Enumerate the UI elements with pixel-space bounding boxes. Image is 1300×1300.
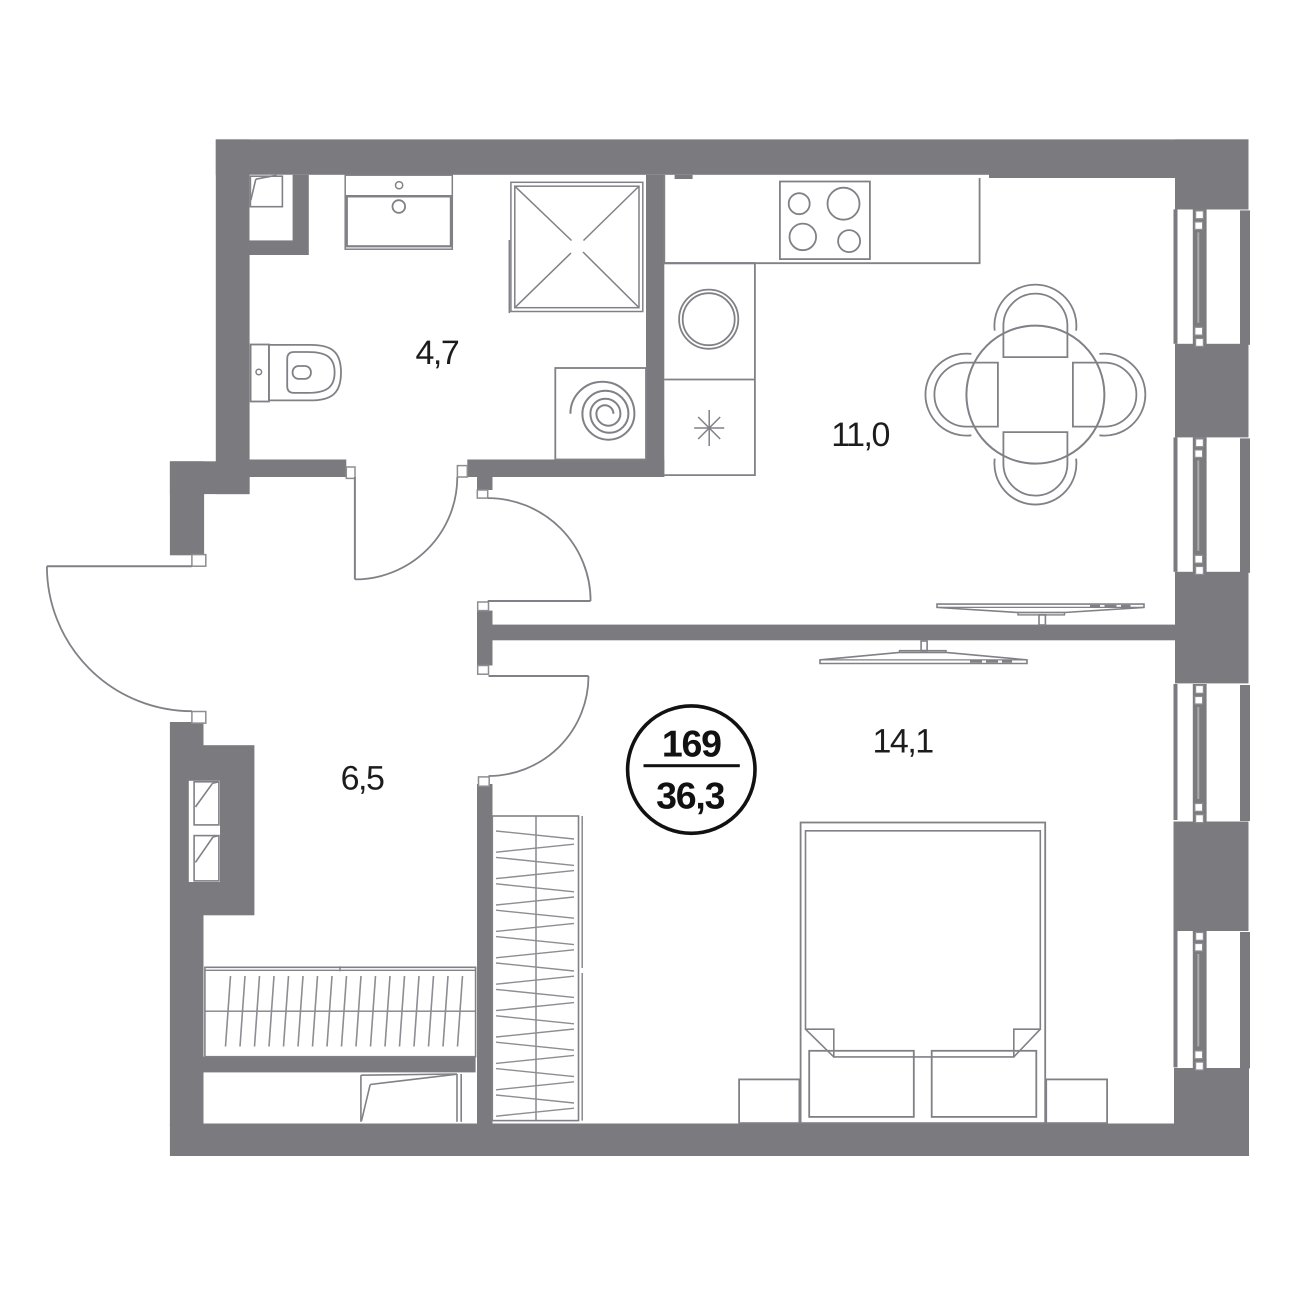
- svg-text:4,7: 4,7: [416, 334, 459, 372]
- svg-text:169: 169: [662, 723, 721, 765]
- svg-text:6,5: 6,5: [341, 759, 384, 797]
- svg-text:36,3: 36,3: [656, 774, 725, 816]
- svg-text:11,0: 11,0: [831, 416, 889, 454]
- svg-text:14,1: 14,1: [873, 723, 934, 761]
